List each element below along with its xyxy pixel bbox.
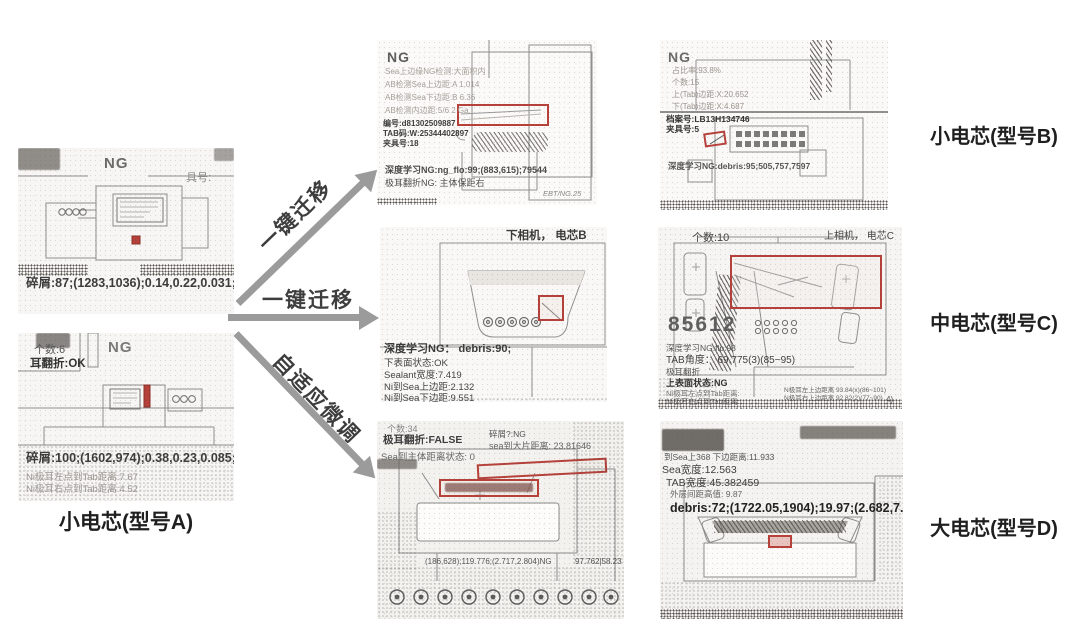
model-b-label: 小电芯(型号B) [910, 120, 1078, 149]
model-c-label: 中电芯(型号C) [910, 307, 1078, 336]
annotation-text-smudge [445, 483, 533, 492]
inspection-image-model-d-view2: 到Sea上368 下边距离:11.933 Sea宽度:12.563 TAB宽度:… [660, 421, 903, 619]
ng-status-label: NG [668, 49, 691, 65]
arrow-head-icon [359, 306, 379, 330]
scan-noise-band [878, 476, 903, 581]
sea-state-line: Sea到主体距离状态: 0 [381, 453, 475, 464]
scan-noise-band [658, 377, 718, 399]
serial-line: 编号:d81302509887 [383, 119, 456, 128]
ocr-line: 占比率:93.8% [672, 66, 721, 75]
tab-angle-line: TAB角度： 69.775(3)(85~95) [666, 355, 795, 367]
measurement-line: 到Sea上368 下边距离:11.933 [664, 453, 774, 463]
serial-line: 夹具号:5 [666, 125, 699, 135]
fold-result: 极耳翻折NG: 主体保距右 [385, 178, 485, 188]
scan-smudge [800, 426, 896, 439]
scan-noise-band [660, 200, 888, 210]
scan-noise-band [377, 511, 417, 571]
debris-result-text: 碎屑:100;(1602,974);0.38,0.23,0.085; [26, 451, 234, 465]
inspection-image-model-a-top: NG 具号: 碎屑:87;(1283,1036);0.14,0.22,0.031… [18, 148, 234, 314]
scan-noise-band [380, 397, 607, 402]
debris-flag: 碎屑?:NG [489, 430, 526, 440]
count-label: 个数:34 [387, 424, 418, 434]
measurement-line: Sealant宽度:7.419 [384, 371, 462, 382]
ocr-line: 个数:15 [672, 78, 699, 87]
coordinate-values: (186,628);119.776;(2.717,2.804)NG [425, 557, 552, 566]
inspection-image-cell-b-lower-cam: 下相机， 电芯B 深度学习NG： debris:90; 下表面状态:OK Sea… [380, 227, 607, 402]
ocr-line: AB检测Sea下边距:B 6.36 [385, 93, 475, 102]
defect-annotation-box [768, 535, 792, 548]
tab-fold-status: 极耳翻折:FALSE [383, 434, 462, 446]
scan-noise-strip [810, 40, 822, 100]
defect-annotation-box [538, 295, 564, 321]
scan-noise-band [658, 399, 902, 409]
inspection-image-model-d-view1: 个数:34 极耳翻折:FALSE 碎屑?:NG sea到大片距离: 23.816… [377, 421, 624, 619]
camera-header: 上相机， 电芯C [824, 231, 894, 243]
sea-width-line: Sea宽度:12.563 [662, 464, 737, 476]
serial-line: TAB码:W:25344402897 [383, 129, 469, 138]
deep-learning-result: 深度学习NG:flp:98 [666, 344, 736, 354]
inspection-image-model-b-cam2: NG 占比率:93.8% 个数:15 上(Tab)边距:X:20.652 下(T… [660, 40, 888, 210]
measurement-line: 外层间距高值: 9.87 [670, 490, 742, 500]
ocr-line: AB检测内边距:5/6 2 Ga [385, 106, 469, 115]
scan-noise-strip [826, 40, 832, 92]
deep-learning-result: 深度学习NG： debris:90; [384, 343, 511, 356]
inspection-image-model-b-cam1: NG Sea上边缘NG检测:大面积内 AB检测Sea上边距:A 1.014 AB… [377, 40, 597, 205]
scan-noise-band [660, 609, 903, 619]
defect-texture-region [472, 132, 548, 152]
scan-noise-band [572, 421, 624, 566]
scan-noise-band [18, 264, 88, 276]
scan-smudge [214, 148, 234, 161]
defect-annotation-box [730, 255, 882, 309]
model-a-label: 小电芯(型号A) [18, 506, 234, 536]
arrow-middle-label: 一键迁移 [262, 284, 354, 314]
ng-status-label: NG [108, 339, 133, 356]
migration-arrow-middle [228, 314, 360, 321]
deep-learning-result: 深度学习NG:debris:95;505,757,7597 [668, 162, 810, 172]
debris-result-text: debris:72;(1722.05,1904);19.97;(2.682,7.… [670, 501, 903, 515]
inspection-image-model-a-bottom: 个数:6 耳翻折:OK NG 碎屑:100;(1602,974);0.38,0.… [18, 333, 234, 501]
jig-number-label: 具号: [186, 172, 211, 185]
tray-texture [714, 520, 846, 533]
ocr-line: AB检测Sea上边距:A 1.014 [385, 80, 479, 89]
scan-noise-band [377, 566, 624, 619]
ocr-line: 上(Tab)边距:X:20.652 [672, 90, 748, 99]
scan-smudge [18, 148, 60, 170]
ocr-line: 下(Tab)边距:X:4.687 [672, 102, 744, 111]
tab-width-line: TAB宽度:45.382459 [666, 477, 759, 489]
scan-noise-band [377, 198, 437, 205]
measurement-line: Ni极耳左点到Tab距离:7.67 [26, 473, 138, 484]
measurement-line: 下表面状态:OK [384, 359, 448, 370]
arrow-bottom-label: 自适应微调 [266, 346, 367, 450]
count-label: 个数:10 [692, 232, 729, 245]
debris-result-text: 碎屑:87;(1283,1036);0.14,0.22,0.031; [26, 276, 234, 290]
inspection-image-model-c-upper-cam: 个数:10 上相机， 电芯C 85612 深度学习NG:flp:98 TAB角度… [658, 227, 902, 409]
ocr-line: Sea上边缘NG检测:大面积内 [385, 67, 485, 76]
cell-id-number: 85612 [668, 313, 736, 337]
serial-line: 夹具号:18 [383, 139, 419, 148]
measurement-line: Ni极耳右点到Tab距离:4.52 [26, 485, 138, 496]
ng-status-label: NG [104, 155, 129, 172]
model-d-label: 大电芯(型号D) [910, 512, 1078, 541]
corner-annotation: EBT/NG.25 [543, 190, 581, 199]
scan-noise-band [140, 264, 234, 276]
figure-canvas: NG 具号: 碎屑:87;(1283,1036);0.14,0.22,0.031… [0, 0, 1080, 619]
scan-smudge [662, 429, 724, 451]
deep-learning-result: 深度学习NG:ng_flo:99;(883,615);79544 [385, 165, 547, 175]
count-label: 个数:6 [34, 344, 65, 357]
ng-status-label: NG [387, 49, 410, 65]
camera-header: 下相机， 电芯B [506, 230, 587, 243]
defect-annotation-box [457, 104, 549, 126]
side-measurement: N极耳左上边距离 93.84(x)(86~101) [784, 387, 886, 394]
tab-fold-status: 耳翻折:OK [30, 358, 86, 371]
